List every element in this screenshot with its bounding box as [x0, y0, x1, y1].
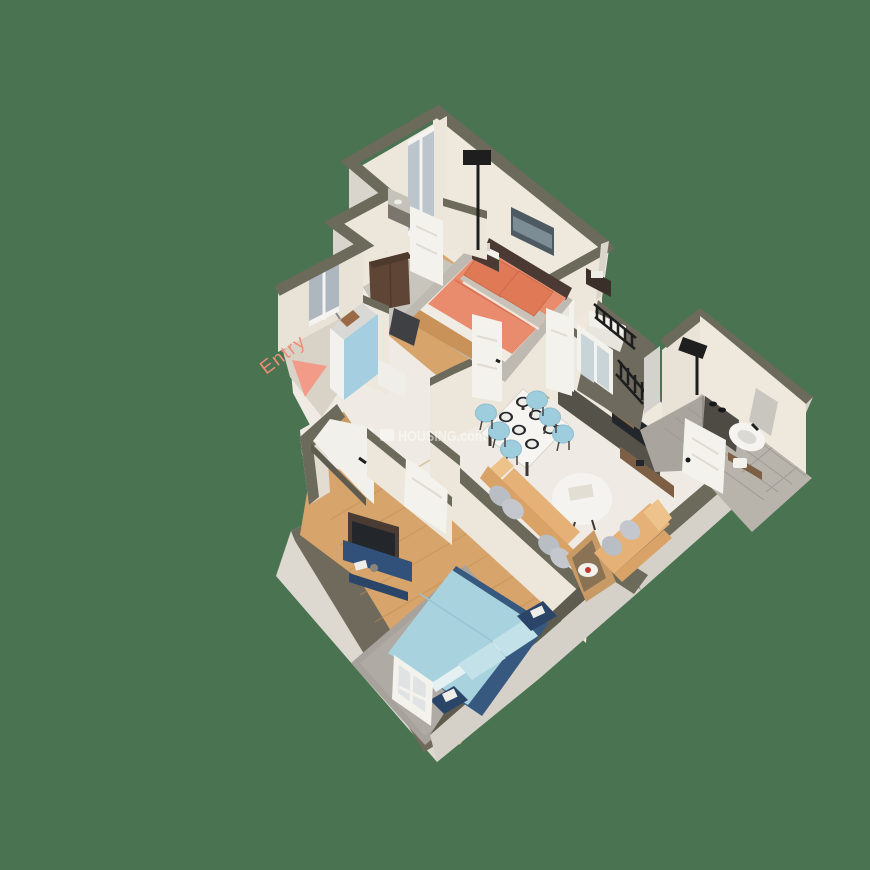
svg-text:HOUSING.com: HOUSING.com [398, 428, 486, 445]
